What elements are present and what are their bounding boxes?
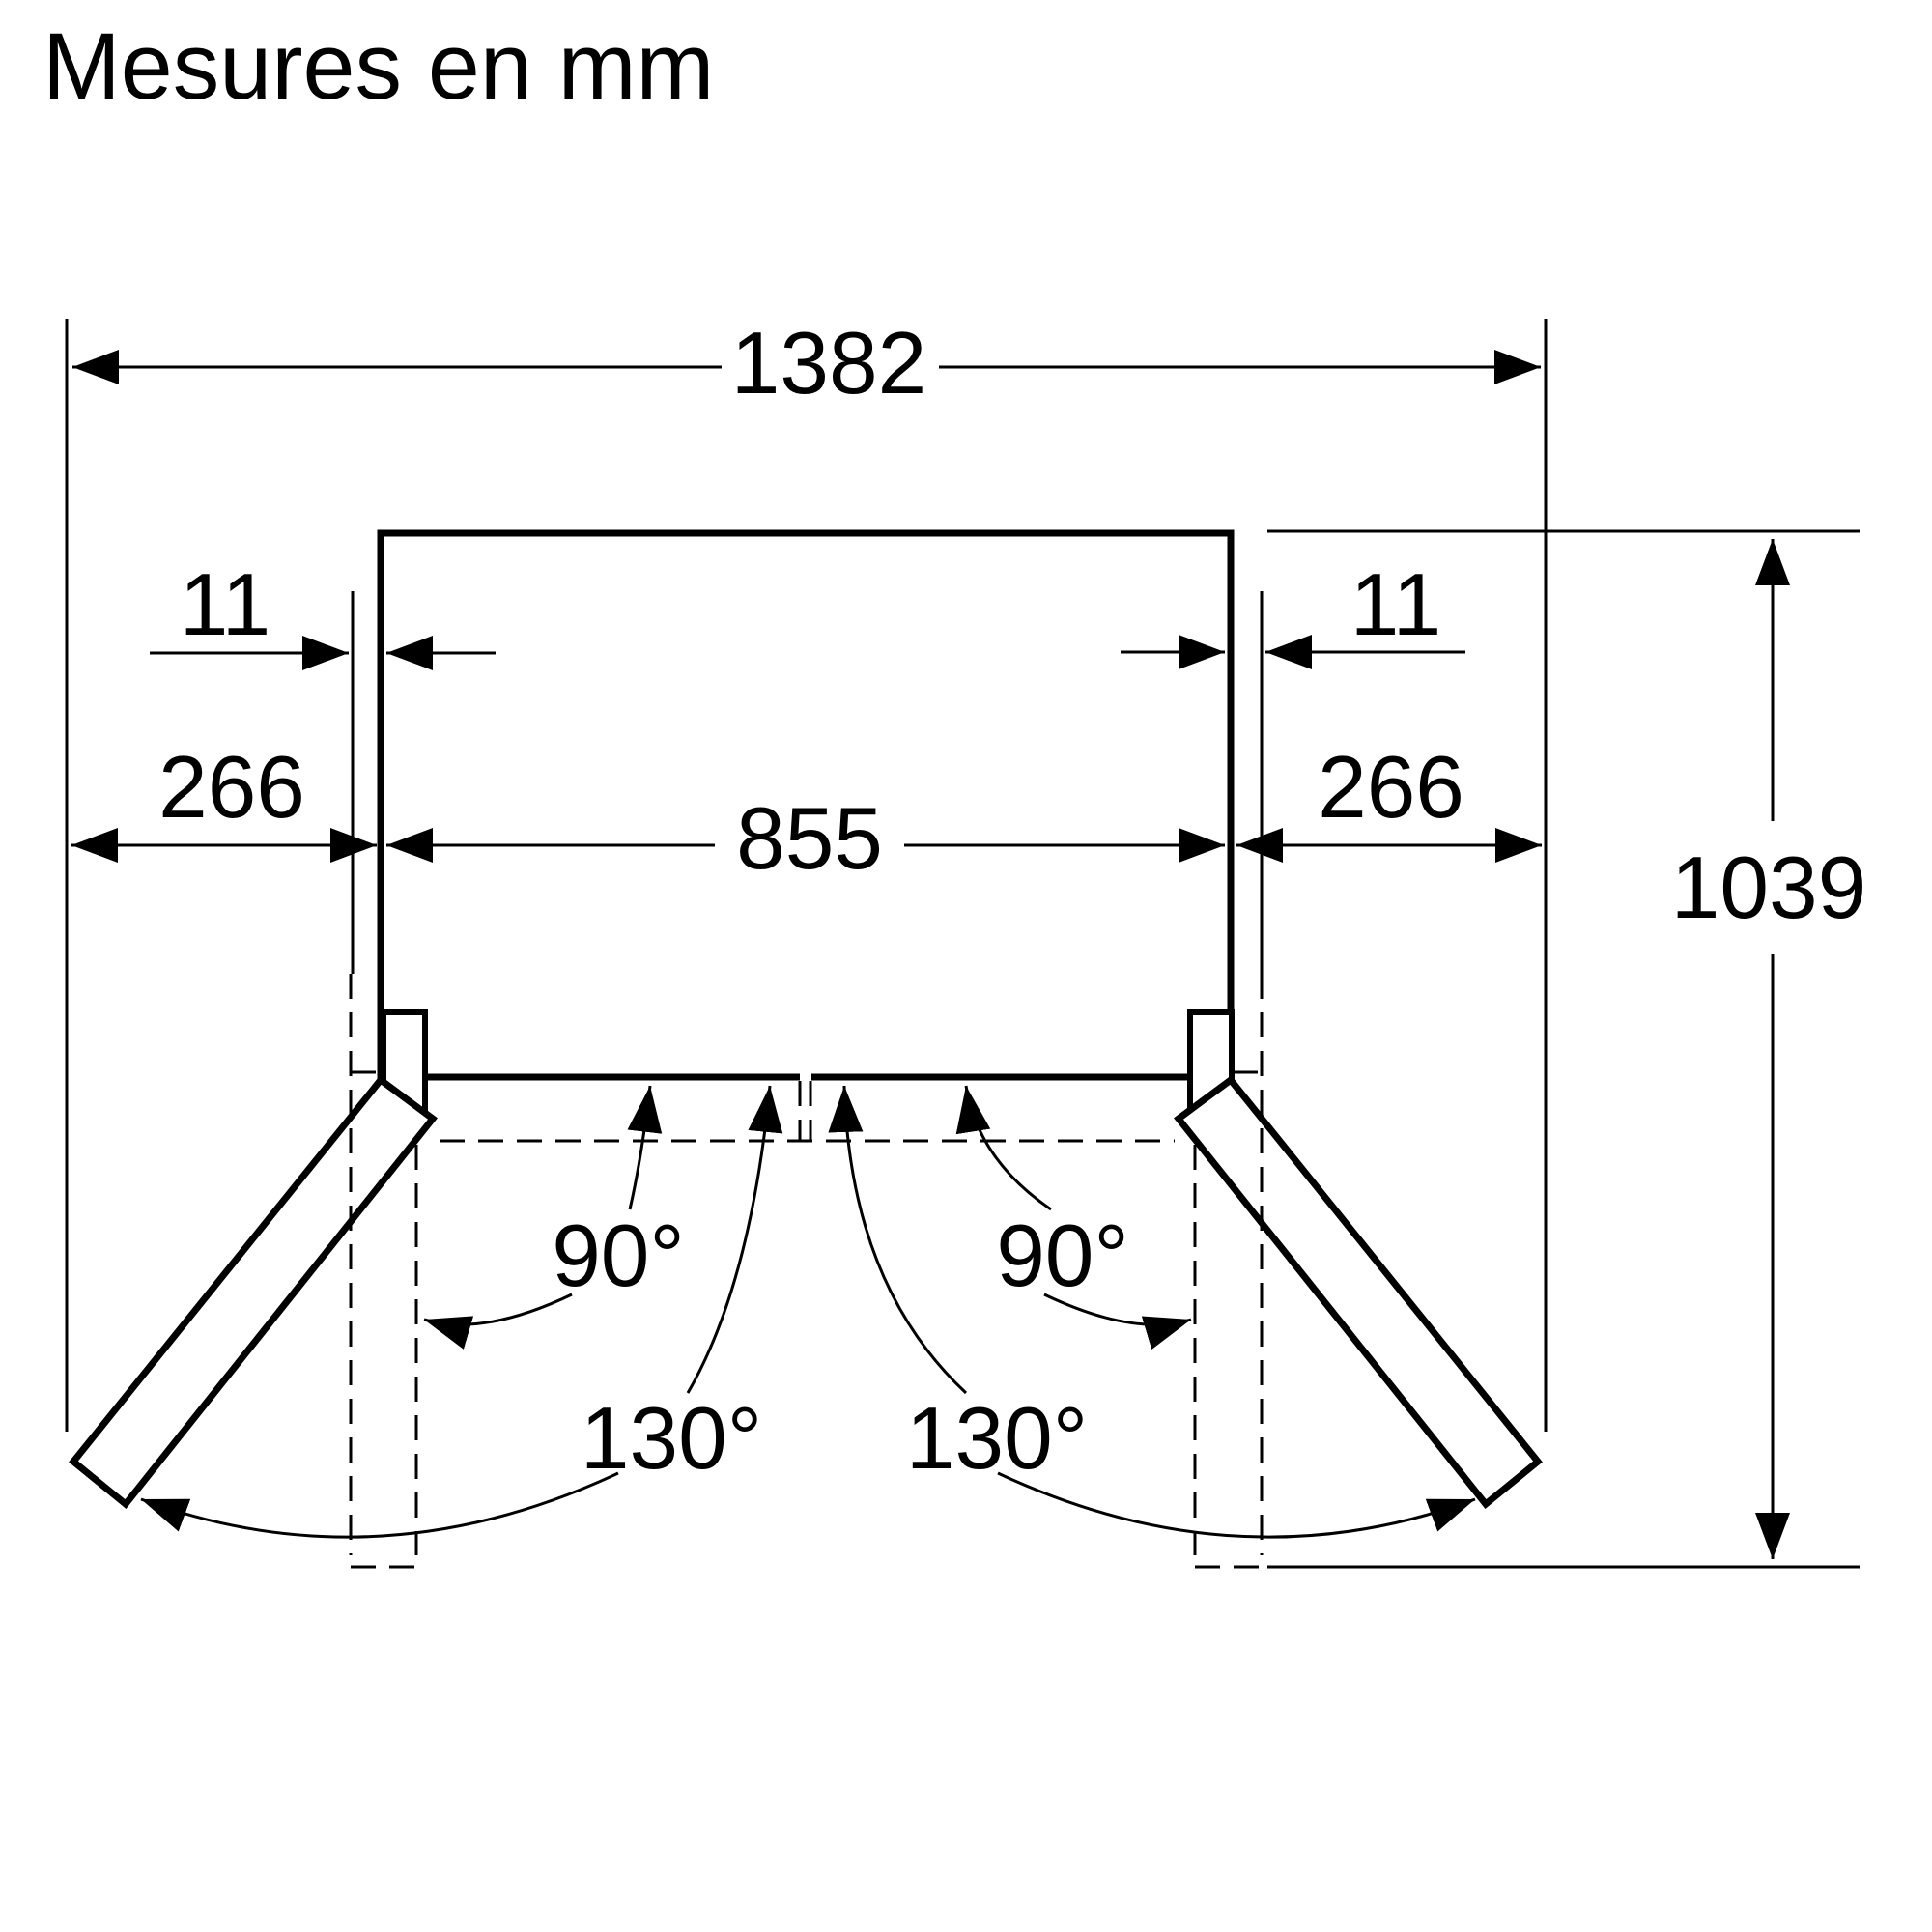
page-title: Mesures en mm xyxy=(43,14,714,119)
door-left-open xyxy=(73,1080,433,1504)
dim-side-clearance-right: 266 xyxy=(1236,739,1542,845)
fridge-dimension-diagram: Mesures en mm 1382 11 11 266 266 xyxy=(0,0,1932,1932)
dim-body-width-value: 855 xyxy=(736,790,883,888)
dim-clearance-left-value: 266 xyxy=(158,739,305,837)
arc-130-left xyxy=(141,1473,618,1537)
angle-130-right-label: 130° xyxy=(906,1390,1088,1488)
leader-90-left-to-front xyxy=(630,1086,650,1209)
angle-130-left-label: 130° xyxy=(581,1390,762,1488)
dim-total-width: 1382 xyxy=(72,315,1541,412)
dim-clearance-right-value: 266 xyxy=(1318,739,1464,837)
dim-total-width-value: 1382 xyxy=(731,315,926,412)
dim-total-depth-value: 1039 xyxy=(1671,839,1866,937)
dim-side-clearance-left: 266 xyxy=(71,739,377,845)
extension-lines xyxy=(67,319,1860,1567)
dim-door-protrusion-left: 11 xyxy=(150,556,496,654)
leader-90-left-to-guide xyxy=(424,1294,572,1324)
angle-90-right-label: 90° xyxy=(996,1207,1129,1305)
dim-body-width: 855 xyxy=(386,790,1225,888)
dim-total-depth: 1039 xyxy=(1671,539,1866,1559)
measurement-diagram-page: Mesures en mm 1382 11 11 266 266 xyxy=(0,0,1932,1932)
leader-90-right-to-front xyxy=(966,1086,1051,1209)
leader-130-right-to-front xyxy=(844,1086,966,1393)
dim-protrusion-left-value: 11 xyxy=(180,556,270,654)
dim-protrusion-right-value: 11 xyxy=(1350,556,1441,654)
doors-open-130 xyxy=(73,1080,1538,1504)
angle-90-left-label: 90° xyxy=(552,1207,685,1305)
leader-130-left-to-front xyxy=(688,1086,770,1393)
dim-door-protrusion-right: 11 xyxy=(1121,556,1465,654)
door-right-open xyxy=(1179,1080,1538,1504)
